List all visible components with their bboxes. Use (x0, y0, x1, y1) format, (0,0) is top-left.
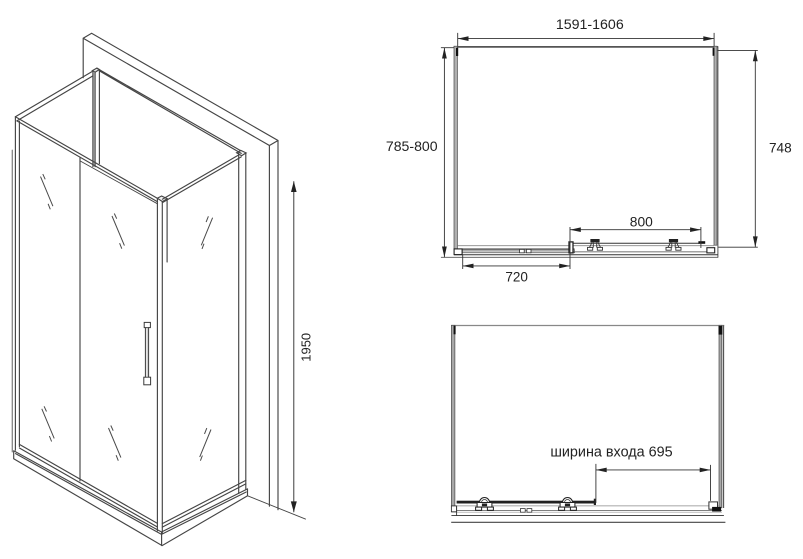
svg-text:785-800: 785-800 (386, 138, 438, 154)
svg-text:ширина входа 695: ширина входа 695 (550, 445, 672, 461)
svg-text:1950: 1950 (298, 333, 313, 362)
svg-text:720: 720 (505, 270, 528, 285)
svg-text:748: 748 (769, 141, 792, 156)
svg-text:1591-1606: 1591-1606 (556, 17, 624, 33)
svg-text:800: 800 (630, 215, 653, 230)
